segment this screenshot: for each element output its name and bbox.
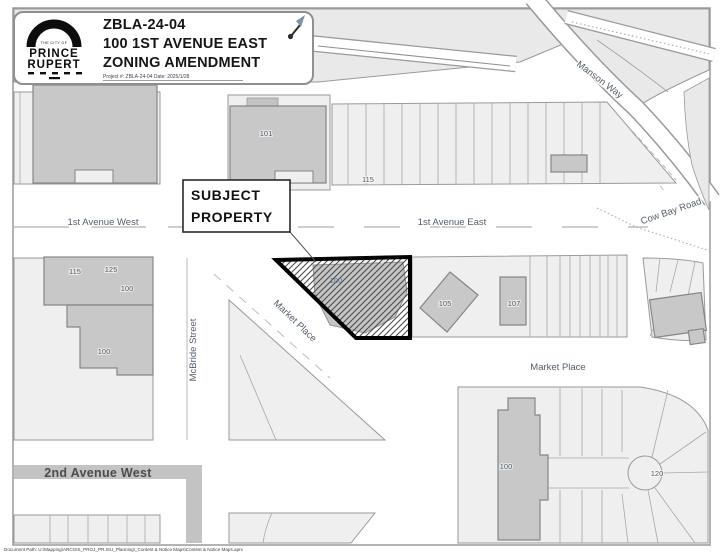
footer-document-path: Document Path: U:\Mapping\ARCGIS_PROJ_PR… — [4, 547, 244, 552]
parcel-label-107: 107 — [508, 299, 521, 308]
zoning-amendment-map-page: 101 115 115 125 100 100 — [0, 0, 725, 560]
block-northwest — [14, 85, 160, 184]
parcel-label-115-strip: 115 — [362, 175, 374, 184]
street-label-1st-avenue-east: 1st Avenue East — [418, 217, 487, 228]
title-meta: Project #: ZBLA-24-04 Date: 2025/1/28 — [103, 74, 190, 80]
block-105-107: 105 107 — [412, 255, 627, 337]
parcel-label-115-west: 115 — [69, 267, 81, 276]
callout-line-1: SUBJECT — [191, 187, 261, 203]
callout-line-2: PROPERTY — [191, 209, 273, 225]
parcel-label-120: 120 — [651, 469, 664, 478]
parcel-label-125: 125 — [105, 265, 118, 274]
title-doc-type: ZONING AMENDMENT — [103, 55, 260, 71]
parcel-label-100-southeast: 100 — [500, 462, 513, 471]
parcel-label-100-subject: 100 — [330, 276, 343, 285]
parcel-label-101: 101 — [260, 129, 273, 138]
street-label-market-place-east: Market Place — [530, 362, 585, 373]
title-address: 100 1ST AVENUE EAST — [103, 36, 267, 52]
parcel-label-105: 105 — [439, 299, 452, 308]
title-project-id: ZBLA-24-04 — [103, 17, 186, 33]
street-label-1st-avenue-west: 1st Avenue West — [68, 217, 139, 228]
logo-tagline: THE CITY OF — [41, 41, 68, 45]
parcel-label-100-west-lower: 100 — [98, 347, 111, 356]
logo-name-bottom: RUPERT — [27, 59, 80, 71]
block-east-curved — [643, 258, 708, 349]
street-label-mcbride-street: McBride Street — [188, 318, 199, 381]
block-trapezoid-south — [229, 513, 375, 543]
parcel-label-100-west-upper: 100 — [121, 284, 134, 293]
street-label-2nd-avenue-west: 2nd Avenue West — [44, 466, 152, 480]
title-block: THE CITY OF PRINCE RUPERT ZBLA-24-04 100… — [14, 12, 313, 84]
block-101: 101 — [228, 95, 330, 190]
zoning-map: 101 115 115 125 100 100 — [0, 0, 725, 560]
block-southwest-lots — [14, 515, 160, 543]
block-southeast: 100 120 — [458, 387, 708, 543]
